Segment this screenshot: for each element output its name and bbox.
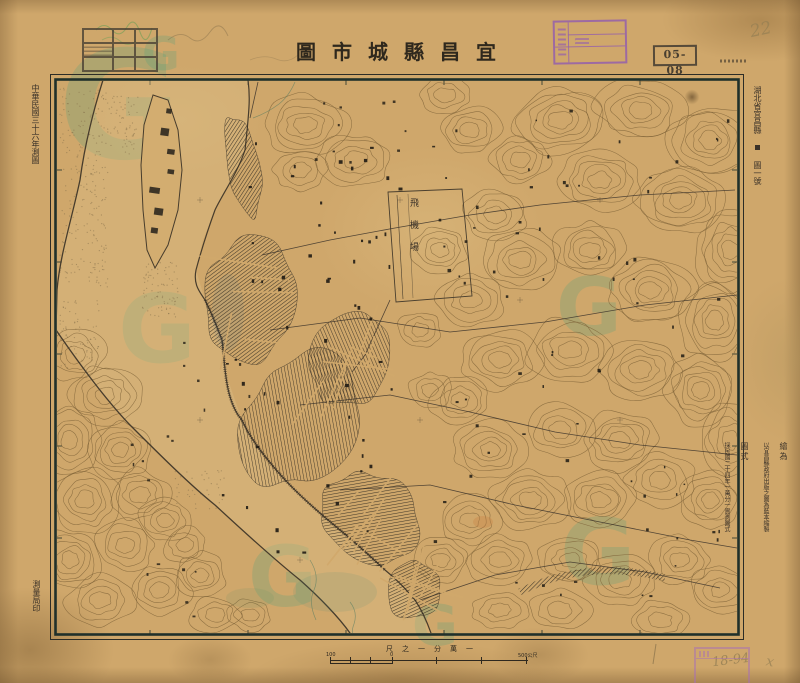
sheet-region-label: 湖北省宜昌縣: [753, 86, 762, 134]
scale-bar-graphic: 100 0 500公尺: [326, 656, 542, 666]
map-canvas: [0, 0, 800, 683]
compilation-notes: 繪為 以宜昌縣政府出版之圖為藍本縮製 圖式 採民國二十四年一萬分一實測圖式: [746, 442, 792, 564]
map-content: [41, 76, 764, 639]
note-head: 繪為: [779, 442, 788, 462]
scanned-map-page: G G G G G G G 圖市城縣昌宜 05-08 22 18-94 x 中華…: [0, 0, 800, 683]
sheet-label: 湖北省宜昌縣 圖一號: [752, 86, 763, 256]
scale-bar: 尺之一分萬一 100 0 500公尺: [326, 644, 542, 670]
note-body: 以宜昌縣政府出版之圖為藍本縮製: [762, 442, 768, 532]
note-head: 圖式: [740, 442, 749, 462]
sheet-number-label: 圖一號: [753, 161, 762, 185]
sheet-seal-icon: [755, 145, 760, 150]
airfield: [388, 189, 472, 302]
faint-archive-stamp: [694, 647, 750, 683]
printer-note: 測量局印: [31, 580, 42, 640]
dike: [520, 571, 665, 592]
note-body: 採民國二十四年一萬分一實測圖式: [723, 442, 729, 532]
note-column: 圖式 採民國二十四年一萬分一實測圖式: [717, 442, 753, 564]
archive-stamp: [553, 19, 628, 64]
library-grid-stamp: [82, 28, 158, 72]
catalog-number-stamp: 05-08: [653, 45, 697, 66]
scale-zero-label: 0: [390, 652, 393, 658]
airfield-label: 飛機場: [408, 198, 421, 294]
note-column: 繪為 以宜昌縣政府出版之圖為藍本縮製: [756, 442, 792, 564]
scale-right-label: 500公尺: [518, 652, 538, 659]
scale-left-label: 100: [326, 652, 336, 658]
map-title: 圖市城縣昌宜: [296, 36, 516, 65]
scale-caption: 尺之一分萬一: [326, 644, 542, 654]
survey-date-note: 中華民國三十六年測圖: [30, 84, 41, 234]
